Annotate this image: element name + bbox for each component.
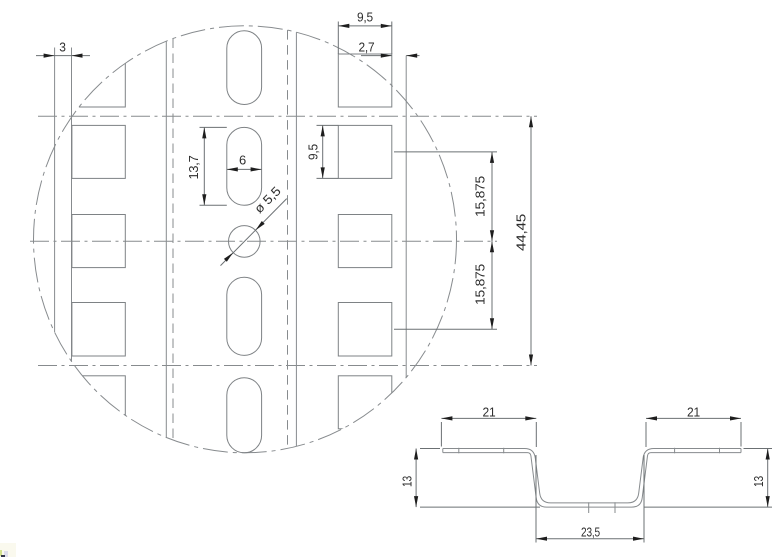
svg-text:2,7: 2,7 bbox=[359, 40, 375, 55]
svg-text:21: 21 bbox=[483, 405, 496, 420]
svg-text:9,5: 9,5 bbox=[357, 10, 373, 25]
svg-text:15,875: 15,875 bbox=[473, 264, 488, 305]
svg-text:3: 3 bbox=[59, 40, 66, 55]
svg-text:44,45: 44,45 bbox=[514, 214, 529, 251]
svg-text:13: 13 bbox=[751, 476, 766, 487]
svg-text:ø 5,5: ø 5,5 bbox=[251, 183, 284, 216]
svg-text:13: 13 bbox=[400, 476, 415, 487]
svg-text:21: 21 bbox=[687, 405, 700, 420]
svg-text:23,5: 23,5 bbox=[581, 525, 600, 540]
svg-text:6: 6 bbox=[239, 153, 246, 168]
svg-text:9,5: 9,5 bbox=[306, 144, 321, 160]
svg-text:13,7: 13,7 bbox=[186, 155, 201, 179]
svg-text:15,875: 15,875 bbox=[473, 176, 488, 217]
